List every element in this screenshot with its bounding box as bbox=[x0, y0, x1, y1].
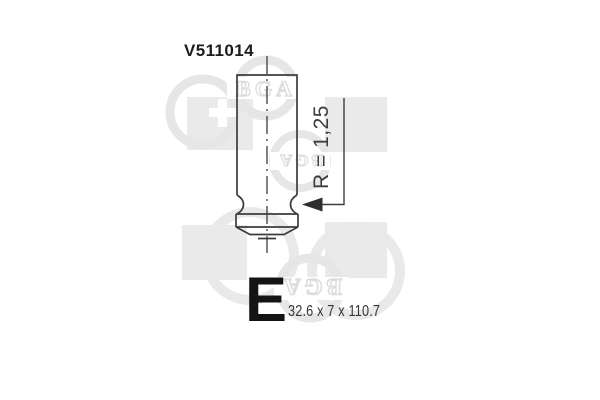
valve-dimensions: 32.6 x 7 x 110.7 bbox=[288, 303, 380, 321]
radius-dimension-label: R = 1,25 bbox=[309, 97, 335, 197]
valve-catalog-image: BGA BGA BGA bbox=[0, 0, 600, 400]
part-number: V511014 bbox=[184, 41, 254, 61]
valve-drawing bbox=[0, 0, 600, 400]
valve-type-letter: E bbox=[245, 269, 287, 332]
valve-groove-left bbox=[237, 195, 244, 214]
radius-arrow-icon bbox=[302, 198, 323, 212]
valve-groove-right bbox=[291, 195, 298, 214]
